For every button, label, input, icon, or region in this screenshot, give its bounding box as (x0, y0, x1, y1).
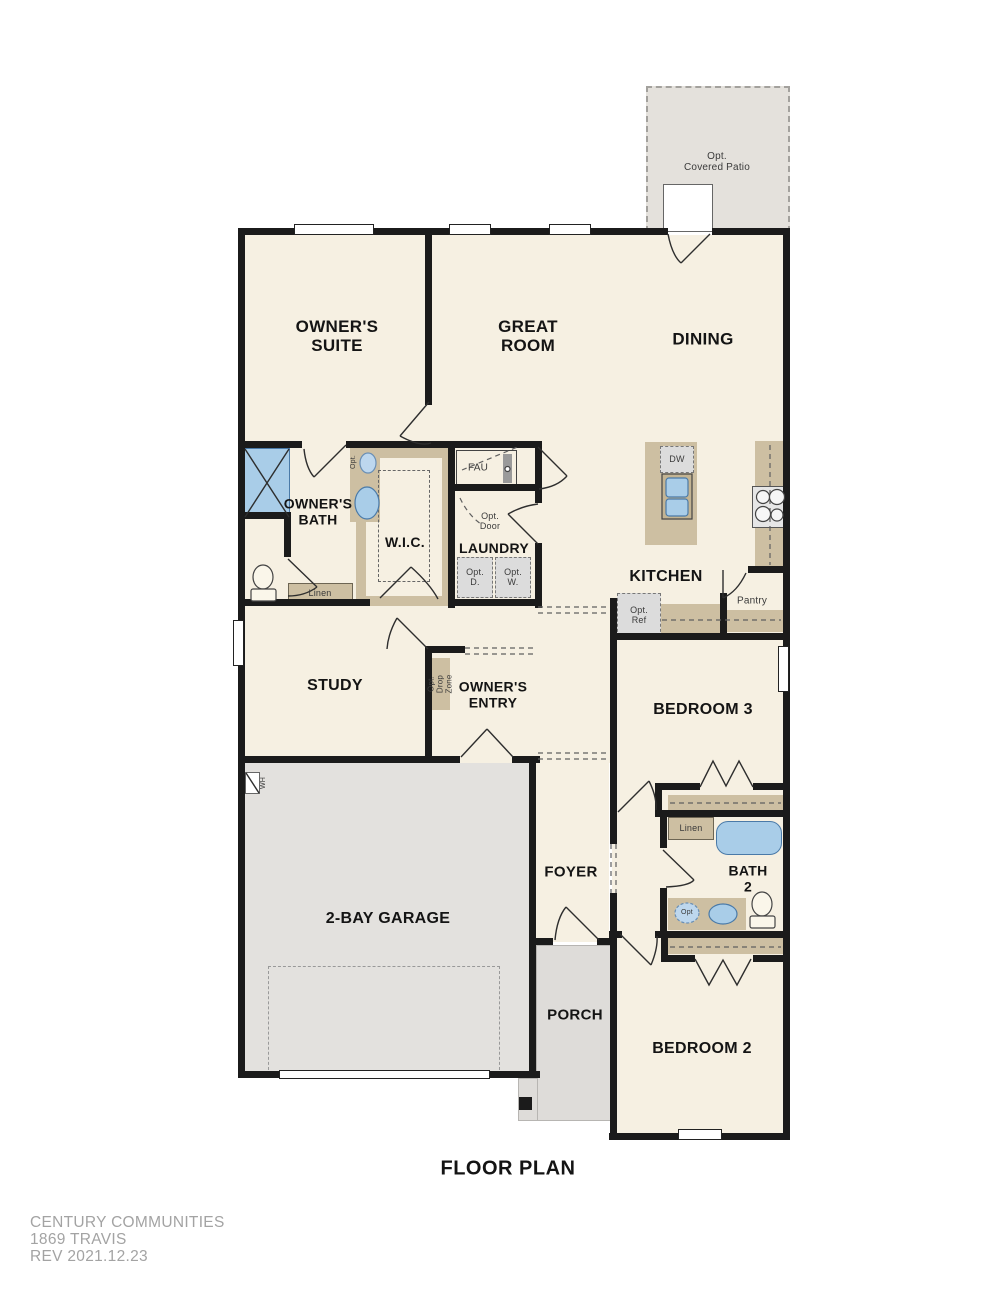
title-block: CENTURY COMMUNITIES 1869 TRAVIS REV 2021… (30, 1214, 225, 1265)
wall (425, 228, 432, 405)
wall (655, 931, 790, 938)
bedroom2-closet-shelf (668, 938, 783, 954)
room-label-wic: W.I.C. (385, 535, 425, 551)
dishwasher-label: DW (669, 454, 684, 464)
builder-name: CENTURY COMMUNITIES (30, 1214, 225, 1231)
wic-shelf-outline (378, 470, 430, 582)
room-label-porch: PORCH (547, 1008, 603, 1025)
hall-floor-area (536, 604, 610, 763)
room-label-dining: DINING (672, 329, 733, 348)
wall (238, 756, 460, 763)
room-label-study: STUDY (307, 677, 363, 695)
window (678, 1129, 722, 1140)
wall (448, 484, 542, 491)
wall (448, 441, 455, 608)
window (449, 224, 491, 235)
wall (610, 633, 790, 640)
wall (712, 228, 790, 235)
pantry-label: Pantry (737, 595, 767, 606)
wall (720, 1133, 790, 1140)
room-label-great-room: GREAT ROOM (498, 317, 558, 355)
wall (748, 566, 790, 573)
revision-date: REV 2021.12.23 (30, 1248, 225, 1265)
opt-door-label: Opt. Door (480, 511, 500, 531)
wall (660, 817, 667, 848)
room-label-opt-covered-patio: Opt. Covered Patio (684, 151, 750, 173)
room-label-kitchen: KITCHEN (629, 568, 702, 586)
wall (753, 783, 790, 790)
opt-ref-label: Opt. Ref (630, 605, 648, 625)
room-label-laundry: LAUNDRY (459, 541, 529, 557)
room-label-bath-2: BATH 2 (728, 863, 767, 894)
window (294, 224, 374, 235)
opt-washer-label: Opt. W. (504, 567, 522, 587)
wall (238, 441, 302, 448)
room-label-owners-suite: OWNER'S SUITE (296, 317, 379, 355)
window (778, 646, 789, 692)
bath2-vanity (668, 898, 746, 930)
garage-door-recess-outline (268, 966, 500, 1075)
wall (655, 810, 790, 817)
wall (609, 931, 622, 938)
wall (425, 646, 432, 763)
garage-door (279, 1070, 490, 1079)
wall (610, 598, 617, 844)
plan-name: 1869 TRAVIS (30, 1231, 225, 1248)
opt-sink-label: Opt. (350, 455, 358, 469)
wall (661, 955, 695, 962)
window (233, 620, 244, 666)
room-label-bedroom-3: BEDROOM 3 (653, 701, 753, 719)
wall (609, 1133, 681, 1140)
wall (655, 783, 700, 790)
water-heater-box (245, 772, 260, 794)
fau-label: FAU (468, 462, 488, 473)
wall (238, 599, 370, 606)
stove (752, 486, 785, 528)
wall (753, 955, 790, 962)
floor-plan-sheet: OWNER'S SUITE GREAT ROOM DINING OWNER'S … (0, 0, 1000, 1294)
wall (346, 441, 542, 448)
opt-dryer-label: Opt. D. (466, 567, 484, 587)
page-title: FLOOR PLAN (441, 1158, 576, 1181)
room-label-owners-bath: OWNER'S BATH (284, 496, 352, 527)
wall (529, 756, 536, 1078)
opt-sink-bath2-label: Opt (681, 909, 693, 917)
foyer-floor-area (536, 760, 609, 942)
room-label-garage: 2-BAY GARAGE (326, 910, 451, 928)
wall (529, 938, 553, 945)
pantry-shelf-band (722, 610, 783, 632)
patio-door-landing (663, 184, 713, 232)
room-label-owners-entry: OWNER'S ENTRY (459, 679, 527, 710)
bedroom3-closet-shelf (668, 795, 783, 811)
bathtub (716, 821, 782, 855)
wall (448, 599, 542, 606)
fau-vent (503, 454, 512, 483)
wall (535, 441, 542, 503)
water-heater-label: WH (260, 777, 268, 789)
porch-column (519, 1097, 532, 1110)
room-label-foyer: FOYER (544, 865, 597, 882)
linen-label-owners: Linen (308, 588, 331, 598)
opt-drop-zone-label: Opt. Drop Zone (428, 674, 455, 693)
room-label-bedroom-2: BEDROOM 2 (652, 1040, 752, 1058)
window (549, 224, 591, 235)
porch-floor-area (536, 945, 613, 1121)
linen-label-hall: Linen (679, 823, 702, 833)
